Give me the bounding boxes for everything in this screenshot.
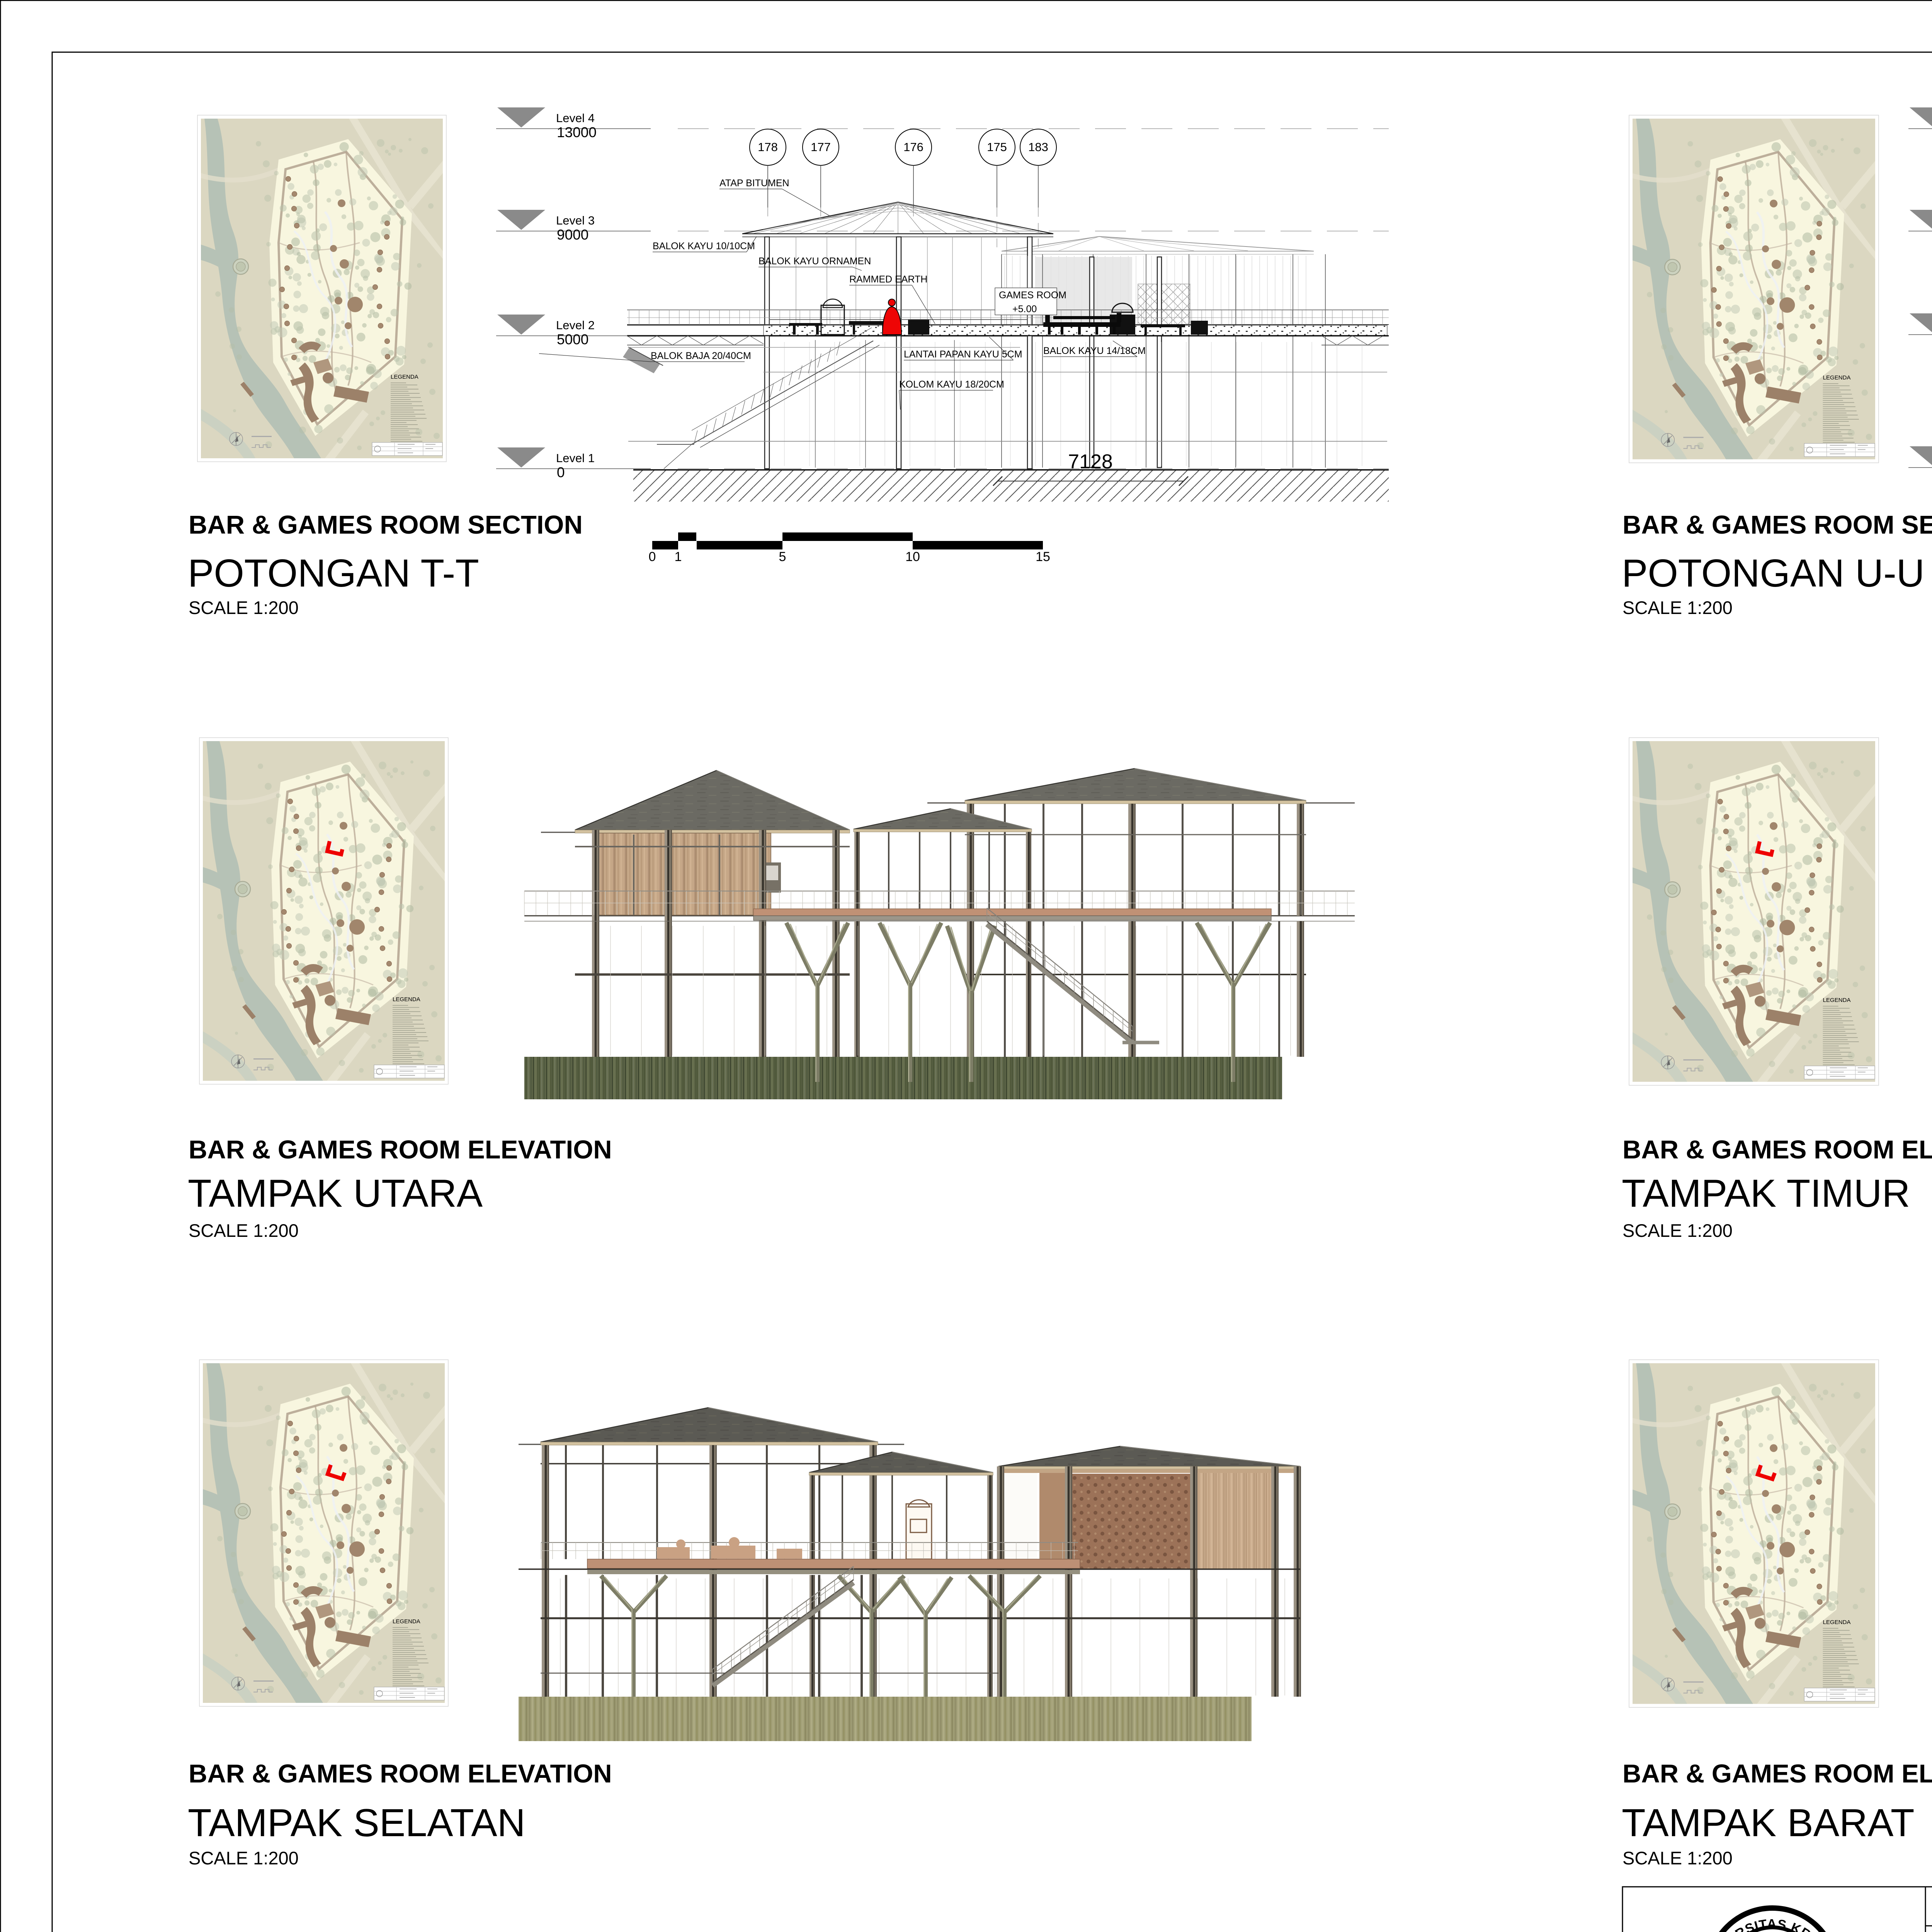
svg-text:BAR & GAMES ROOM ELEVATION: BAR & GAMES ROOM ELEVATION <box>1622 1135 1932 1164</box>
svg-text:BALOK KAYU ORNAMEN: BALOK KAYU ORNAMEN <box>759 256 871 267</box>
svg-text:BAR & GAMES ROOM SECTION: BAR & GAMES ROOM SECTION <box>1622 510 1932 539</box>
svg-text:BALOK KAYU 14/18CM: BALOK KAYU 14/18CM <box>1043 345 1146 356</box>
svg-text:176: 176 <box>903 140 923 154</box>
svg-text:BAR & GAMES ROOM ELEVATION: BAR & GAMES ROOM ELEVATION <box>1622 1759 1932 1788</box>
svg-text:Level 4: Level 4 <box>556 111 595 125</box>
svg-text:15: 15 <box>1036 549 1050 564</box>
svg-text:ATAP BITUMEN: ATAP BITUMEN <box>719 178 789 189</box>
svg-text:Level 1: Level 1 <box>556 451 595 465</box>
svg-text:POTONGAN U-U: POTONGAN U-U <box>1622 552 1925 595</box>
svg-text:1: 1 <box>675 549 682 564</box>
svg-text:178: 178 <box>758 140 778 154</box>
svg-text:SCALE 1:200: SCALE 1:200 <box>189 1848 299 1868</box>
svg-text:Level 3: Level 3 <box>556 214 595 227</box>
svg-text:175: 175 <box>987 140 1007 154</box>
svg-text:KOLOM KAYU 18/20CM: KOLOM KAYU 18/20CM <box>899 379 1004 390</box>
svg-text:BAR & GAMES ROOM ELEVATION: BAR & GAMES ROOM ELEVATION <box>189 1759 612 1788</box>
svg-text:Level 2: Level 2 <box>556 318 595 332</box>
svg-text:13000: 13000 <box>557 124 597 140</box>
svg-text:TAMPAK BARAT: TAMPAK BARAT <box>1622 1801 1915 1845</box>
svg-text:SCALE 1:200: SCALE 1:200 <box>189 597 299 618</box>
svg-text:LANTAI PAPAN KAYU 5CM: LANTAI PAPAN KAYU 5CM <box>904 349 1022 360</box>
svg-text:POTONGAN T-T: POTONGAN T-T <box>188 552 479 595</box>
svg-text:RAMMED EARTH: RAMMED EARTH <box>849 274 927 285</box>
svg-text:SCALE 1:200: SCALE 1:200 <box>1622 1220 1733 1241</box>
svg-text:5000: 5000 <box>557 332 588 347</box>
svg-text:9000: 9000 <box>557 227 588 243</box>
svg-text:TAMPAK SELATAN: TAMPAK SELATAN <box>188 1801 526 1845</box>
svg-text:0: 0 <box>557 464 565 480</box>
svg-text:183: 183 <box>1028 140 1048 154</box>
svg-text:10: 10 <box>905 549 920 564</box>
svg-text:GAMES ROOM: GAMES ROOM <box>999 290 1066 301</box>
svg-text:TAMPAK UTARA: TAMPAK UTARA <box>188 1172 483 1215</box>
svg-text:SCALE 1:200: SCALE 1:200 <box>1622 1848 1733 1868</box>
svg-text:BAR & GAMES ROOM SECTION: BAR & GAMES ROOM SECTION <box>189 510 583 539</box>
svg-text:0: 0 <box>649 549 656 564</box>
svg-text:7128: 7128 <box>1068 451 1113 473</box>
svg-text:5: 5 <box>779 549 786 564</box>
svg-text:+5.00: +5.00 <box>1012 304 1037 315</box>
svg-text:BALOK BAJA 20/40CM: BALOK BAJA 20/40CM <box>651 350 751 361</box>
svg-text:TAMPAK TIMUR: TAMPAK TIMUR <box>1622 1172 1910 1215</box>
svg-text:SCALE 1:200: SCALE 1:200 <box>189 1220 299 1241</box>
svg-text:177: 177 <box>811 140 831 154</box>
svg-text:SCALE 1:200: SCALE 1:200 <box>1622 597 1733 618</box>
svg-text:BALOK KAYU 10/10CM: BALOK KAYU 10/10CM <box>653 241 755 252</box>
svg-text:BAR & GAMES ROOM ELEVATION: BAR & GAMES ROOM ELEVATION <box>189 1135 612 1164</box>
